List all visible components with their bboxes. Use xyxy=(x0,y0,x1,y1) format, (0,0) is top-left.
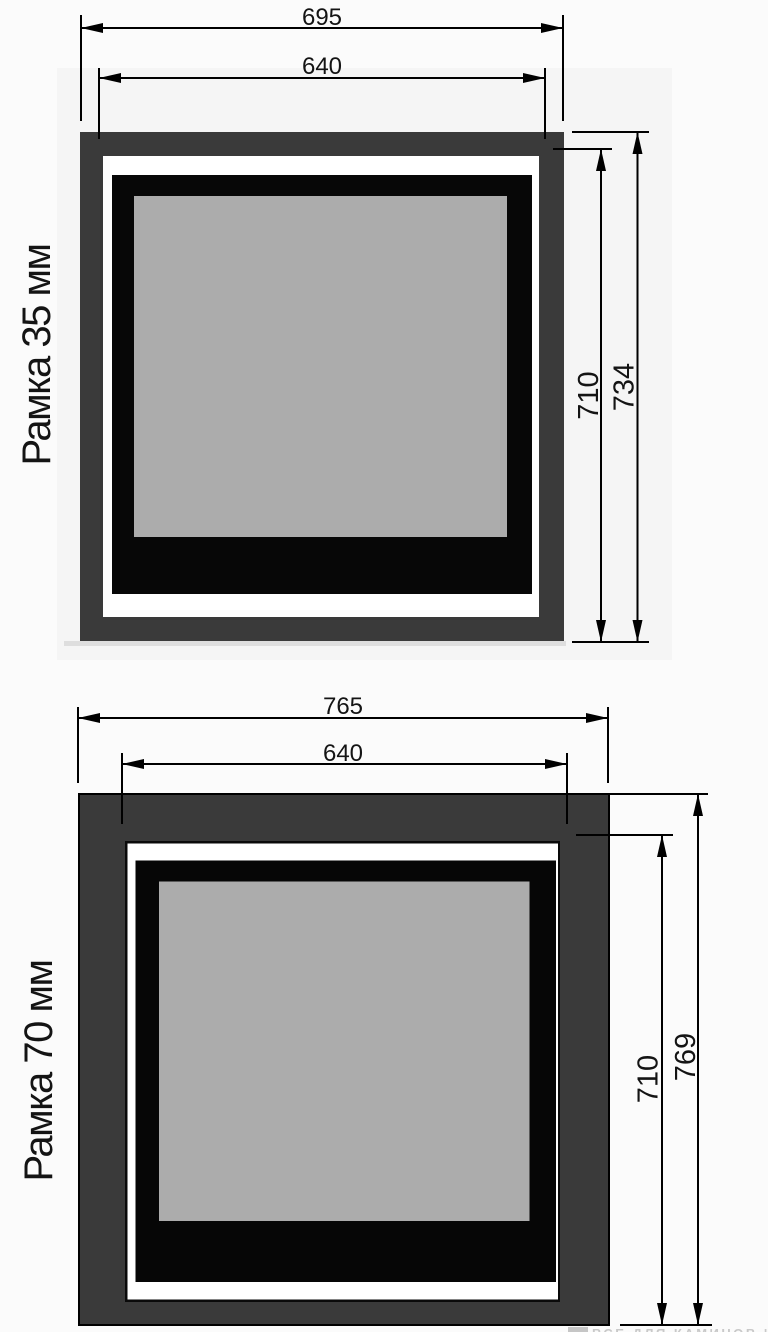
svg-text:710: 710 xyxy=(633,1055,665,1103)
svg-text:710: 710 xyxy=(573,371,605,419)
svg-text:Рамка 70 мм: Рамка 70 мм xyxy=(17,961,61,1182)
svg-text:640: 640 xyxy=(323,740,363,767)
svg-text:ВСЕ ДЛЯ КАМИНОВ И ПЕЧЕЙ: ВСЕ ДЛЯ КАМИНОВ И ПЕЧЕЙ xyxy=(592,1326,768,1332)
svg-text:769: 769 xyxy=(670,1033,702,1081)
svg-text:640: 640 xyxy=(302,53,342,80)
svg-text:734: 734 xyxy=(609,363,641,411)
svg-text:765: 765 xyxy=(323,693,363,720)
svg-text:Рамка 35 мм: Рамка 35 мм xyxy=(15,245,59,466)
svg-text:695: 695 xyxy=(302,4,342,31)
